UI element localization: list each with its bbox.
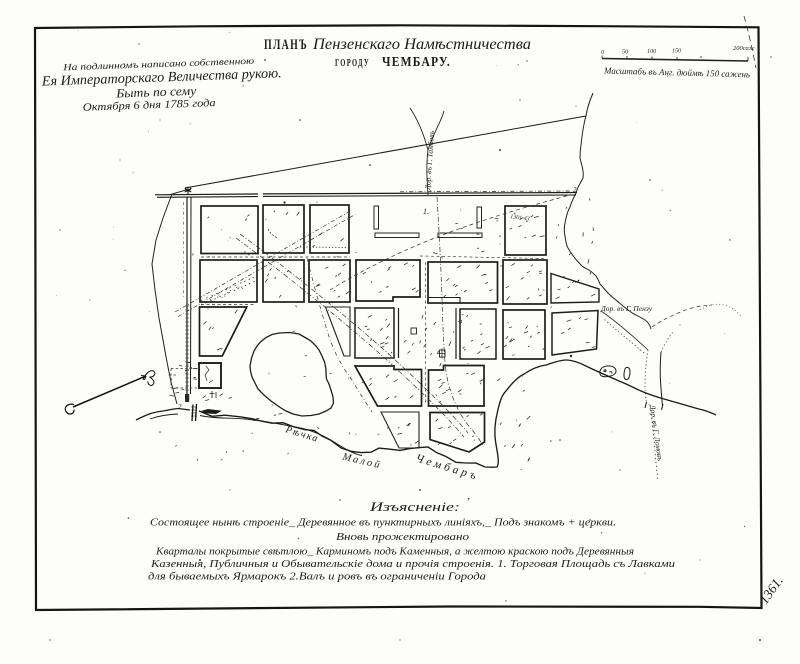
svg-text:Кварталы покрытые свѣтлою_ Кар: Кварталы покрытые свѣтлою_ Карминомъ под… [155,547,635,558]
svg-text:ПЛАНЪ: ПЛАНЪ [264,37,308,53]
svg-text:Изъясненіе:: Изъясненіе: [369,500,460,514]
svg-text:’: ’ [466,496,470,508]
svg-text:ГОРОДУ: ГОРОДУ [335,58,370,69]
svg-text:для бываемыхъ Ярмарокъ 2.Валъ: для бываемыхъ Ярмарокъ 2.Валъ и ровъ въ … [148,572,486,583]
svg-text:Вновь прожектировано: Вновь прожектировано [336,531,470,543]
svg-text:2: 2 [178,403,182,411]
svg-text:0: 0 [601,50,604,56]
svg-text:50: 50 [622,50,628,56]
svg-text:Состоящее нынѣ строеніе_ Дерев: Состоящее нынѣ строеніе_ Деревянное въ п… [150,518,616,529]
svg-text:Пензенскаго Намѣстничества: Пензенскаго Намѣстничества [312,36,531,53]
svg-text:150: 150 [672,49,681,55]
svg-text:100: 100 [647,49,656,55]
svg-text:1.: 1. [423,207,429,216]
svg-text:Казенныя, Публичныя и Обывател: Казенныя, Публичныя и Обывательскіе дома… [150,559,675,570]
svg-text:Дор. въ Г. Пензу: Дор. въ Г. Пензу [600,304,653,313]
svg-text:ЧЕМБАРУ.: ЧЕМБАРУ. [382,55,451,70]
